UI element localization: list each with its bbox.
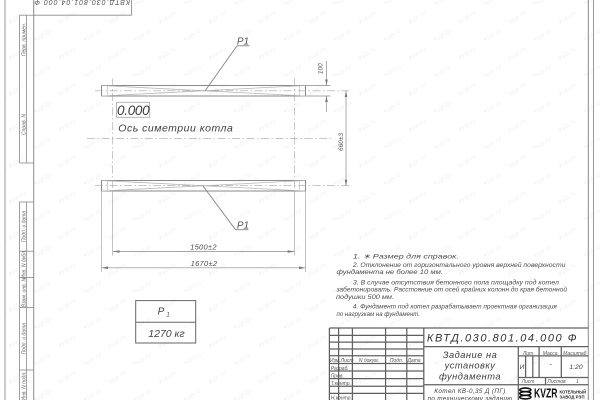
- svg-text:Пров.: Пров.: [331, 373, 344, 379]
- svg-text:Котел КВ-0,35 Д (ПГ): Котел КВ-0,35 Д (ПГ): [434, 388, 505, 395]
- svg-text:0.000: 0.000: [117, 103, 150, 118]
- svg-text:КВТД.030.801.04.000 Ф: КВТД.030.801.04.000 Ф: [427, 332, 578, 344]
- svg-text:Дата: Дата: [406, 358, 420, 364]
- svg-text:Масса: Масса: [543, 351, 558, 357]
- svg-text:Т.контр.: Т.контр.: [331, 381, 351, 387]
- svg-text:Подп.: Подп.: [390, 358, 403, 364]
- svg-text:Листов: Листов: [546, 379, 566, 385]
- svg-text:подушки 500 мм.: подушки 500 мм.: [336, 293, 394, 301]
- svg-text:1670±2: 1670±2: [191, 259, 218, 268]
- svg-text:Лит.: Лит.: [522, 351, 535, 357]
- svg-text:Справ. N: Справ. N: [22, 114, 28, 135]
- svg-text:И: И: [520, 364, 525, 371]
- svg-text:1:20: 1:20: [569, 364, 582, 371]
- svg-text:1270 кг: 1270 кг: [148, 328, 184, 340]
- svg-text:1. ∗ Размер для справок.: 1. ∗ Размер для справок.: [353, 253, 459, 261]
- svg-text:по техническому заданию: по техническому заданию: [428, 395, 513, 400]
- svg-text:забетонировать. Расстояние от: забетонировать. Расстояние от осей крайн…: [336, 285, 568, 293]
- svg-text:P: P: [158, 307, 165, 318]
- svg-text:N докум.: N докум.: [359, 358, 379, 364]
- svg-text:Подп. и дата: Подп. и дата: [22, 323, 28, 355]
- svg-text:Инв. N дубл.: Инв. N дубл.: [22, 250, 28, 279]
- svg-text:1500±2: 1500±2: [190, 243, 217, 252]
- svg-text:660±3: 660±3: [338, 133, 345, 151]
- svg-text:Изм.Лист: Изм.Лист: [330, 358, 354, 364]
- svg-text:Масштаб: Масштаб: [563, 351, 587, 357]
- svg-text:фундамента не более 10 мм.: фундамента не более 10 мм.: [337, 268, 444, 276]
- svg-text:Инв. N подл.: Инв. N подл.: [22, 371, 28, 400]
- svg-text:P1: P1: [237, 37, 249, 48]
- svg-text:KVZR: KVZR: [534, 387, 558, 400]
- svg-text:Подп. и дата: Подп. и дата: [22, 211, 28, 243]
- svg-text:установку: установку: [444, 360, 497, 370]
- svg-text:100: 100: [318, 63, 325, 74]
- svg-text:4. Фундамент под котел разраба: 4. Фундамент под котел разрабатывает про…: [353, 303, 557, 311]
- svg-text:P1: P1: [237, 221, 249, 232]
- svg-text:КВТД.030.801.04.000 Ф: КВТД.030.801.04.000 Ф: [33, 0, 130, 5]
- svg-text:1: 1: [576, 379, 579, 385]
- svg-text:фундамента: фундамента: [439, 372, 501, 382]
- svg-text:по нагрузкам на фундамент.: по нагрузкам на фундамент.: [337, 310, 421, 318]
- svg-text:ЗАВОД РЭП: ЗАВОД РЭП: [560, 395, 585, 400]
- svg-text:Задание на: Задание на: [443, 350, 498, 360]
- svg-text:1: 1: [166, 313, 169, 319]
- svg-text:3. В случае отсутствия бетонно: 3. В случае отсутствия бетонного пола пл…: [353, 278, 559, 286]
- svg-text:2. Отклонение от горизонтально: 2. Отклонение от горизонтального уровня …: [352, 261, 566, 269]
- svg-text:Перв. примен.: Перв. примен.: [22, 23, 28, 56]
- svg-text:Н.контр.: Н.контр.: [331, 396, 352, 400]
- svg-text:Лист: Лист: [521, 379, 535, 385]
- svg-text:Разраб.: Разраб.: [331, 366, 349, 372]
- svg-text:Взам. инв. N: Взам. инв. N: [22, 278, 28, 308]
- svg-text:Ось симетрии котла: Ось симетрии котла: [118, 122, 233, 134]
